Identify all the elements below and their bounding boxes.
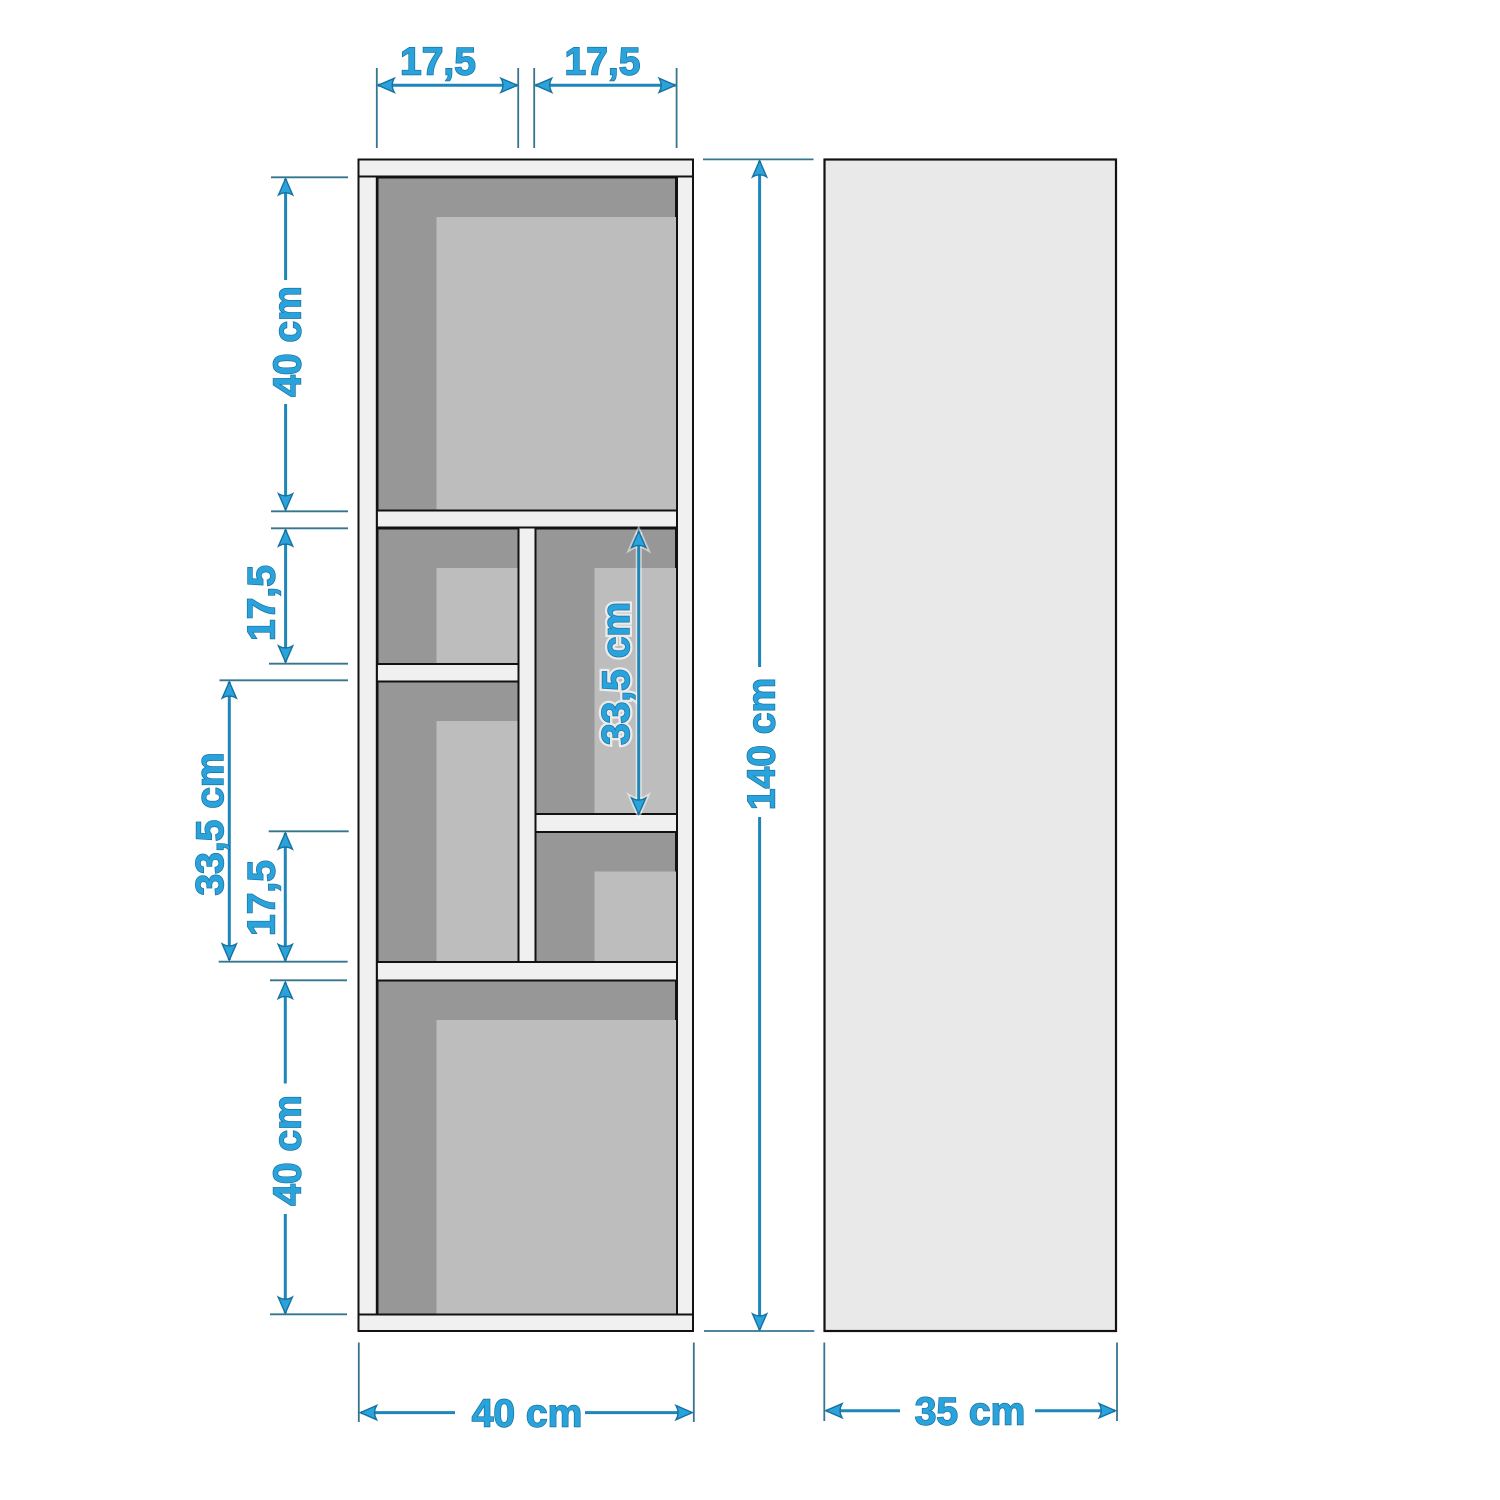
svg-text:17,5: 17,5 [241,860,284,936]
svg-text:40 cm: 40 cm [472,1393,583,1436]
svg-text:33,5 cm: 33,5 cm [595,602,638,745]
svg-text:17,5: 17,5 [565,41,641,84]
svg-text:40 cm: 40 cm [267,1095,310,1206]
svg-text:33,5 cm: 33,5 cm [189,752,232,895]
svg-text:40 cm: 40 cm [267,286,310,397]
svg-text:140 cm: 140 cm [741,678,784,810]
svg-text:35 cm: 35 cm [915,1391,1026,1434]
svg-text:17,5: 17,5 [241,565,284,641]
svg-text:17,5: 17,5 [400,41,476,84]
